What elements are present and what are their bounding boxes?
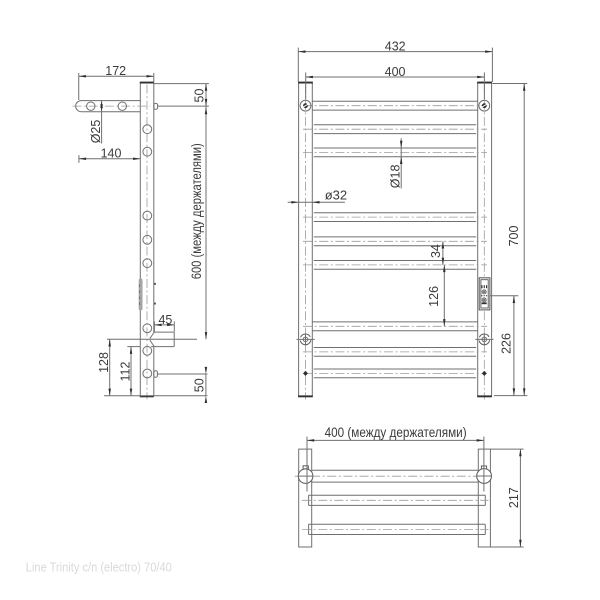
svg-text:400 (между держателями): 400 (между держателями) bbox=[325, 424, 467, 440]
svg-text:45: 45 bbox=[158, 313, 172, 327]
svg-text:217: 217 bbox=[507, 487, 521, 508]
svg-text:Ø25: Ø25 bbox=[89, 120, 103, 144]
svg-text:400: 400 bbox=[385, 65, 406, 79]
svg-text:112: 112 bbox=[118, 361, 132, 381]
svg-text:172: 172 bbox=[105, 64, 126, 78]
svg-text:Ø18: Ø18 bbox=[388, 165, 402, 189]
svg-text:700: 700 bbox=[507, 226, 521, 247]
svg-text:226: 226 bbox=[500, 333, 514, 354]
svg-text:50: 50 bbox=[193, 378, 207, 392]
svg-text:600 (между держателями): 600 (между держателями) bbox=[188, 143, 204, 279]
svg-text:432: 432 bbox=[385, 40, 406, 54]
svg-text:128: 128 bbox=[97, 352, 111, 373]
svg-text:126: 126 bbox=[427, 286, 441, 307]
svg-text:34: 34 bbox=[429, 244, 443, 258]
svg-text:ø32: ø32 bbox=[325, 187, 347, 202]
svg-text:Line Trinity c/n (electro) 70/: Line Trinity c/n (electro) 70/40 bbox=[26, 561, 172, 575]
svg-text:50: 50 bbox=[193, 89, 207, 103]
svg-text:140: 140 bbox=[101, 146, 122, 160]
